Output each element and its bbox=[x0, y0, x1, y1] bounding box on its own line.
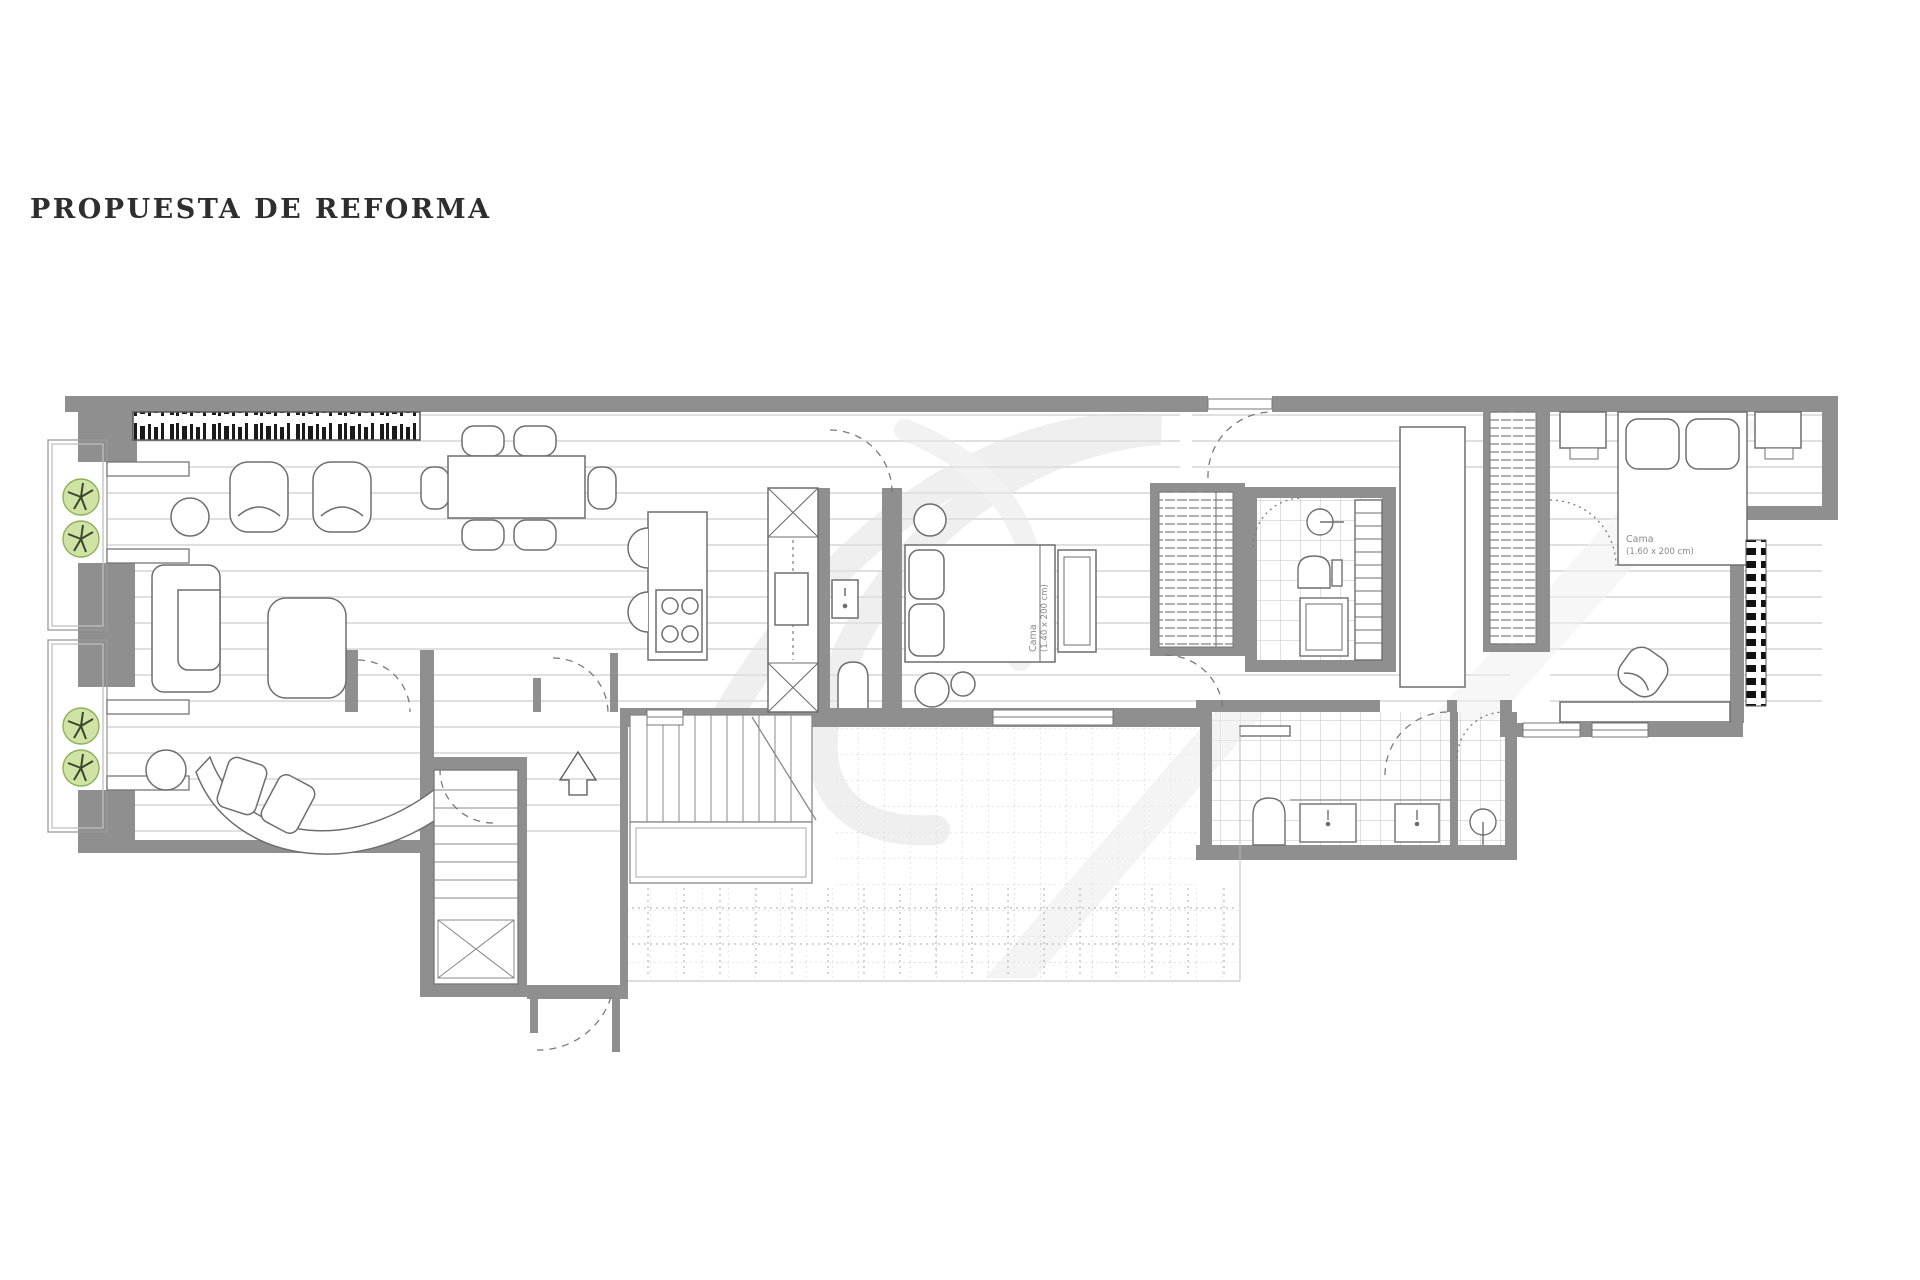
master-right-wall-top bbox=[1822, 396, 1838, 520]
corridor-bottom-wall-a bbox=[1196, 700, 1380, 712]
plant-stool bbox=[915, 673, 949, 707]
round-side-table bbox=[146, 750, 186, 790]
window bbox=[1592, 723, 1648, 737]
tree-icon bbox=[63, 708, 99, 744]
tall-wardrobe bbox=[1400, 427, 1465, 687]
wall-appliance bbox=[832, 580, 858, 618]
stairwell2-right-wall bbox=[518, 757, 527, 997]
stairwell2-bottom-wall bbox=[420, 984, 527, 997]
plant-stool bbox=[914, 504, 946, 536]
entry-jamb-left bbox=[530, 997, 538, 1033]
bed-label-line1: Cama bbox=[1028, 624, 1039, 652]
bed-bench bbox=[1058, 550, 1096, 652]
bed-label-line2: (1.60 x 200 cm) bbox=[1626, 547, 1694, 557]
pillow bbox=[909, 604, 944, 656]
balcony-door-leaf bbox=[107, 549, 189, 563]
bathroom2-bottom-wall bbox=[1196, 845, 1517, 860]
window bbox=[1523, 723, 1580, 737]
shower-divider-wall bbox=[1450, 712, 1458, 845]
bathroom1-left-wall bbox=[1245, 487, 1257, 672]
bathroom1-bottom-wall bbox=[1245, 660, 1396, 672]
tree-icon bbox=[63, 521, 99, 557]
tree-icon bbox=[63, 479, 99, 515]
dining-chair bbox=[462, 520, 504, 550]
bed-label-line1: Cama bbox=[1626, 534, 1654, 545]
bathroom1-top-wall bbox=[1240, 487, 1396, 498]
stairwell2-top-wall bbox=[420, 757, 527, 770]
dining-chair bbox=[514, 520, 556, 550]
toilet bbox=[1253, 798, 1285, 845]
floor-plan-drawing: Cama (1.40 x 200 cm) bbox=[0, 0, 1920, 1280]
armchair bbox=[230, 462, 288, 532]
living-door-stub bbox=[345, 650, 358, 712]
vanity-sink bbox=[1395, 804, 1439, 842]
toilet bbox=[1298, 556, 1342, 588]
floor-plan-page: PROPUESTA DE REFORMA bbox=[0, 0, 1920, 1280]
dining-chair bbox=[462, 426, 504, 456]
cooktop bbox=[656, 590, 702, 652]
armchair bbox=[313, 462, 371, 532]
wardrobe bbox=[1150, 483, 1245, 656]
vestibule-jamb-right bbox=[610, 653, 618, 712]
vestibule-right-wall bbox=[620, 708, 628, 999]
tree-icon bbox=[63, 750, 99, 786]
kitchen-column-wall bbox=[818, 488, 830, 712]
dining-chair bbox=[421, 467, 449, 509]
oven-appliance bbox=[775, 573, 808, 625]
neighbor-stairwell bbox=[434, 770, 518, 984]
pillow bbox=[909, 550, 944, 599]
pillow bbox=[1686, 419, 1739, 469]
hanging-closet bbox=[1483, 408, 1550, 652]
dining-chair bbox=[514, 426, 556, 456]
master-step-wall bbox=[1743, 506, 1838, 520]
bathroom2-left-wall bbox=[1200, 712, 1212, 860]
ottoman bbox=[268, 598, 346, 698]
washbasin-arch bbox=[838, 662, 868, 708]
shower-tray bbox=[1300, 598, 1348, 656]
round-side-table bbox=[171, 498, 209, 536]
open-door-leaf bbox=[1208, 399, 1272, 409]
top-wall-right bbox=[1272, 396, 1838, 412]
bookshelf bbox=[133, 412, 420, 440]
door-arc-entry bbox=[537, 997, 611, 1050]
dining-table bbox=[448, 456, 585, 518]
balcony-door-leaf bbox=[107, 700, 189, 714]
page-title: PROPUESTA DE REFORMA bbox=[30, 194, 492, 225]
bed-label-line2: (1.40 x 200 cm) bbox=[1040, 584, 1050, 652]
l-shaped-sofa bbox=[152, 565, 220, 692]
corridor-bottom-wall-b bbox=[1447, 700, 1457, 712]
vestibule-jamb-left bbox=[533, 678, 541, 712]
top-wall-left bbox=[65, 396, 1208, 412]
window bbox=[993, 710, 1113, 725]
bathroom1-right-wall bbox=[1382, 487, 1396, 672]
pillow bbox=[1626, 419, 1679, 469]
bedroom-left-wall bbox=[882, 488, 902, 708]
dining-chair bbox=[588, 467, 616, 509]
radiator bbox=[1746, 540, 1766, 706]
bath-shelf bbox=[1240, 726, 1290, 736]
plant-stool bbox=[951, 672, 975, 696]
vanity-sink bbox=[1300, 804, 1356, 842]
window bbox=[647, 710, 683, 725]
desk bbox=[1560, 702, 1730, 722]
towel-ladder bbox=[1355, 500, 1382, 660]
tall-cabinet-column bbox=[768, 488, 818, 712]
entry-jamb-right bbox=[612, 997, 620, 1052]
balcony-door-leaf bbox=[107, 462, 189, 476]
vestibule-bottom-wall bbox=[527, 985, 628, 999]
